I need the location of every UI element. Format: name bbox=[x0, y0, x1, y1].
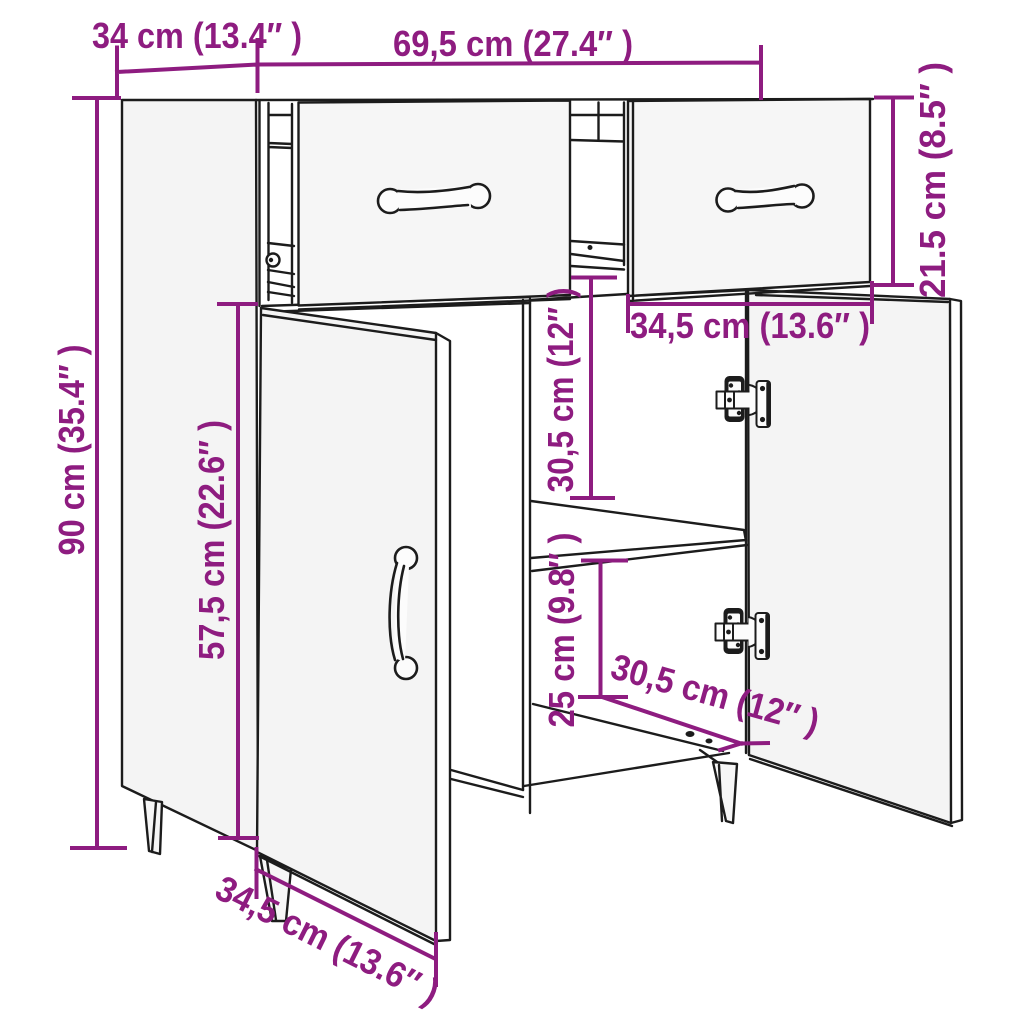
svg-text:69,5 cm (27.4″ ): 69,5 cm (27.4″ ) bbox=[393, 23, 633, 64]
svg-text:57,5 cm (22.6″ ): 57,5 cm (22.6″ ) bbox=[191, 420, 232, 660]
svg-text:25 cm (9.8″ ): 25 cm (9.8″ ) bbox=[541, 533, 582, 728]
svg-text:34,5 cm (13.6″ ): 34,5 cm (13.6″ ) bbox=[630, 305, 870, 346]
svg-text:90 cm (35.4″ ): 90 cm (35.4″ ) bbox=[51, 345, 92, 556]
svg-text:30,5 cm (12″ ): 30,5 cm (12″ ) bbox=[540, 288, 581, 493]
svg-text:34 cm (13.4″ ): 34 cm (13.4″ ) bbox=[92, 15, 302, 56]
svg-text:21.5 cm (8.5″ ): 21.5 cm (8.5″ ) bbox=[912, 62, 953, 298]
